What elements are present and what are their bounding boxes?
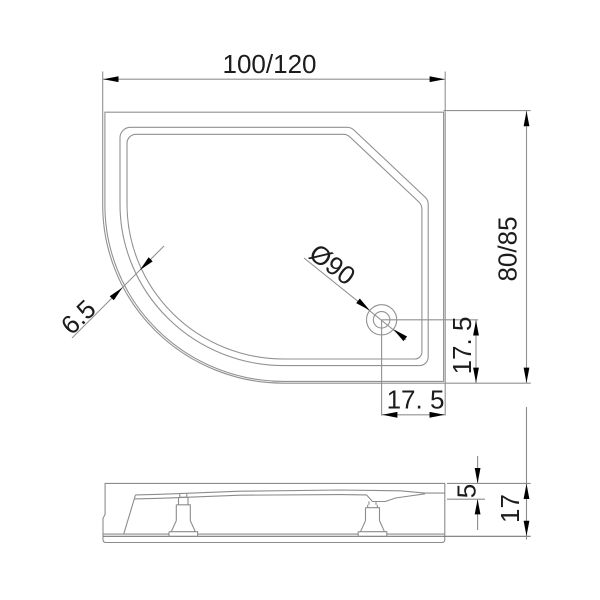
svg-text:17. 5: 17. 5 <box>387 385 445 415</box>
svg-text:17: 17 <box>495 494 525 523</box>
svg-text:100/120: 100/120 <box>223 49 317 79</box>
svg-text:17. 5: 17. 5 <box>447 317 477 375</box>
svg-text:80/85: 80/85 <box>493 216 523 281</box>
svg-text:5: 5 <box>451 484 481 498</box>
